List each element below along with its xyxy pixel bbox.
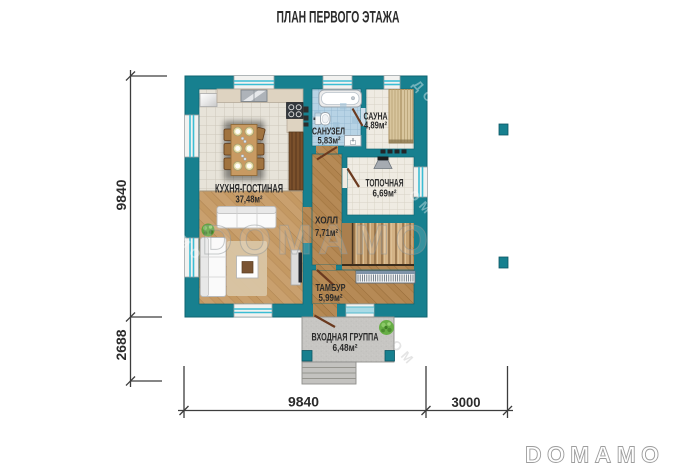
svg-text:2688: 2688 [113, 329, 129, 360]
svg-text:9840: 9840 [113, 179, 129, 210]
svg-text:7,71м²: 7,71м² [315, 228, 339, 239]
svg-text:4,89м²: 4,89м² [364, 121, 388, 132]
svg-text:6,48м²: 6,48м² [333, 342, 358, 354]
svg-text:ХОЛЛ: ХОЛЛ [315, 215, 338, 227]
svg-text:9840: 9840 [288, 394, 319, 410]
svg-text:5,83м²: 5,83м² [318, 136, 341, 147]
svg-text:5,99м²: 5,99м² [319, 293, 344, 304]
svg-text:6,69м²: 6,69м² [373, 189, 398, 200]
svg-text:ПЛАН ПЕРВОГО ЭТАЖА: ПЛАН ПЕРВОГО ЭТАЖА [277, 8, 400, 27]
svg-text:3000: 3000 [452, 394, 481, 410]
svg-text:37,48м²: 37,48м² [236, 194, 263, 206]
